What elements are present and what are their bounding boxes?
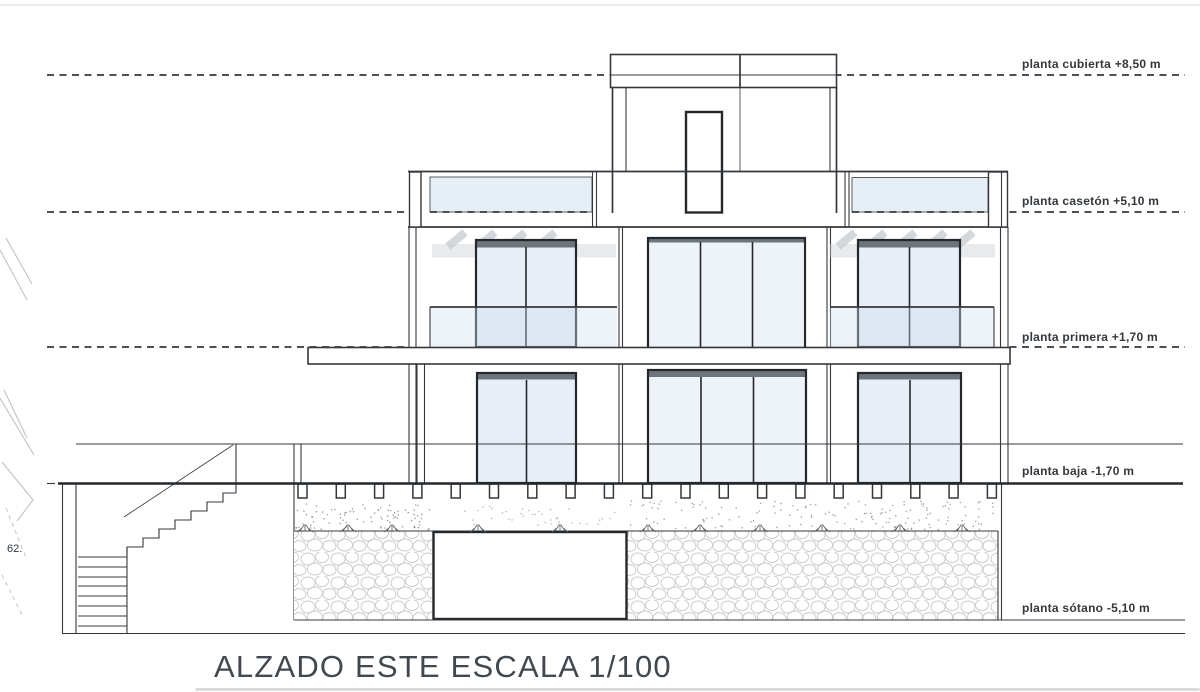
elevation-linework	[0, 0, 1200, 692]
support-posts-row	[298, 484, 996, 498]
level-label-cubierta: planta cubierta +8,50 m	[1022, 57, 1161, 71]
first-floor-window-center	[648, 238, 805, 348]
stair-lower-flight	[78, 557, 127, 626]
level-label-caseton: planta casetón +5,10 m	[1022, 194, 1159, 208]
balcony-slab	[308, 348, 1010, 365]
basement-section	[294, 483, 1002, 620]
drawing-title: ALZADO ESTE ESCALA 1/100	[214, 649, 672, 685]
caseton-door	[686, 112, 722, 213]
caseton-tower	[610, 54, 837, 213]
ground-floor-window-right	[858, 373, 961, 483]
caseton-roof-balustrade	[611, 55, 837, 88]
roof-glass-right	[852, 178, 988, 213]
sheet-bottom-edge	[195, 688, 1200, 691]
stair-dimension-note: 62.	[7, 543, 22, 555]
sheet-top-edge	[0, 4, 1200, 6]
elevation-drawing-sheet: planta cubierta +8,50 m planta casetón +…	[0, 0, 1200, 692]
level-label-primera: planta primera +1,70 m	[1022, 330, 1158, 344]
ground-floor-window-center	[648, 370, 806, 483]
level-label-sotano: planta sótano -5,10 m	[1022, 601, 1150, 615]
stair-stringer	[124, 445, 233, 517]
stone-wall-right	[627, 532, 998, 620]
vegetation-dots	[295, 500, 993, 530]
ground-floor-window-left	[477, 373, 576, 483]
basement-opening	[434, 532, 627, 619]
roof-glass-left	[430, 177, 592, 212]
stair-steps	[127, 493, 236, 556]
stone-wall-left	[294, 532, 433, 620]
staircase-section	[63, 444, 302, 633]
building-facade	[308, 54, 1010, 483]
level-label-baja: planta baja -1,70 m	[1022, 464, 1134, 478]
sketch-marks	[0, 238, 34, 615]
